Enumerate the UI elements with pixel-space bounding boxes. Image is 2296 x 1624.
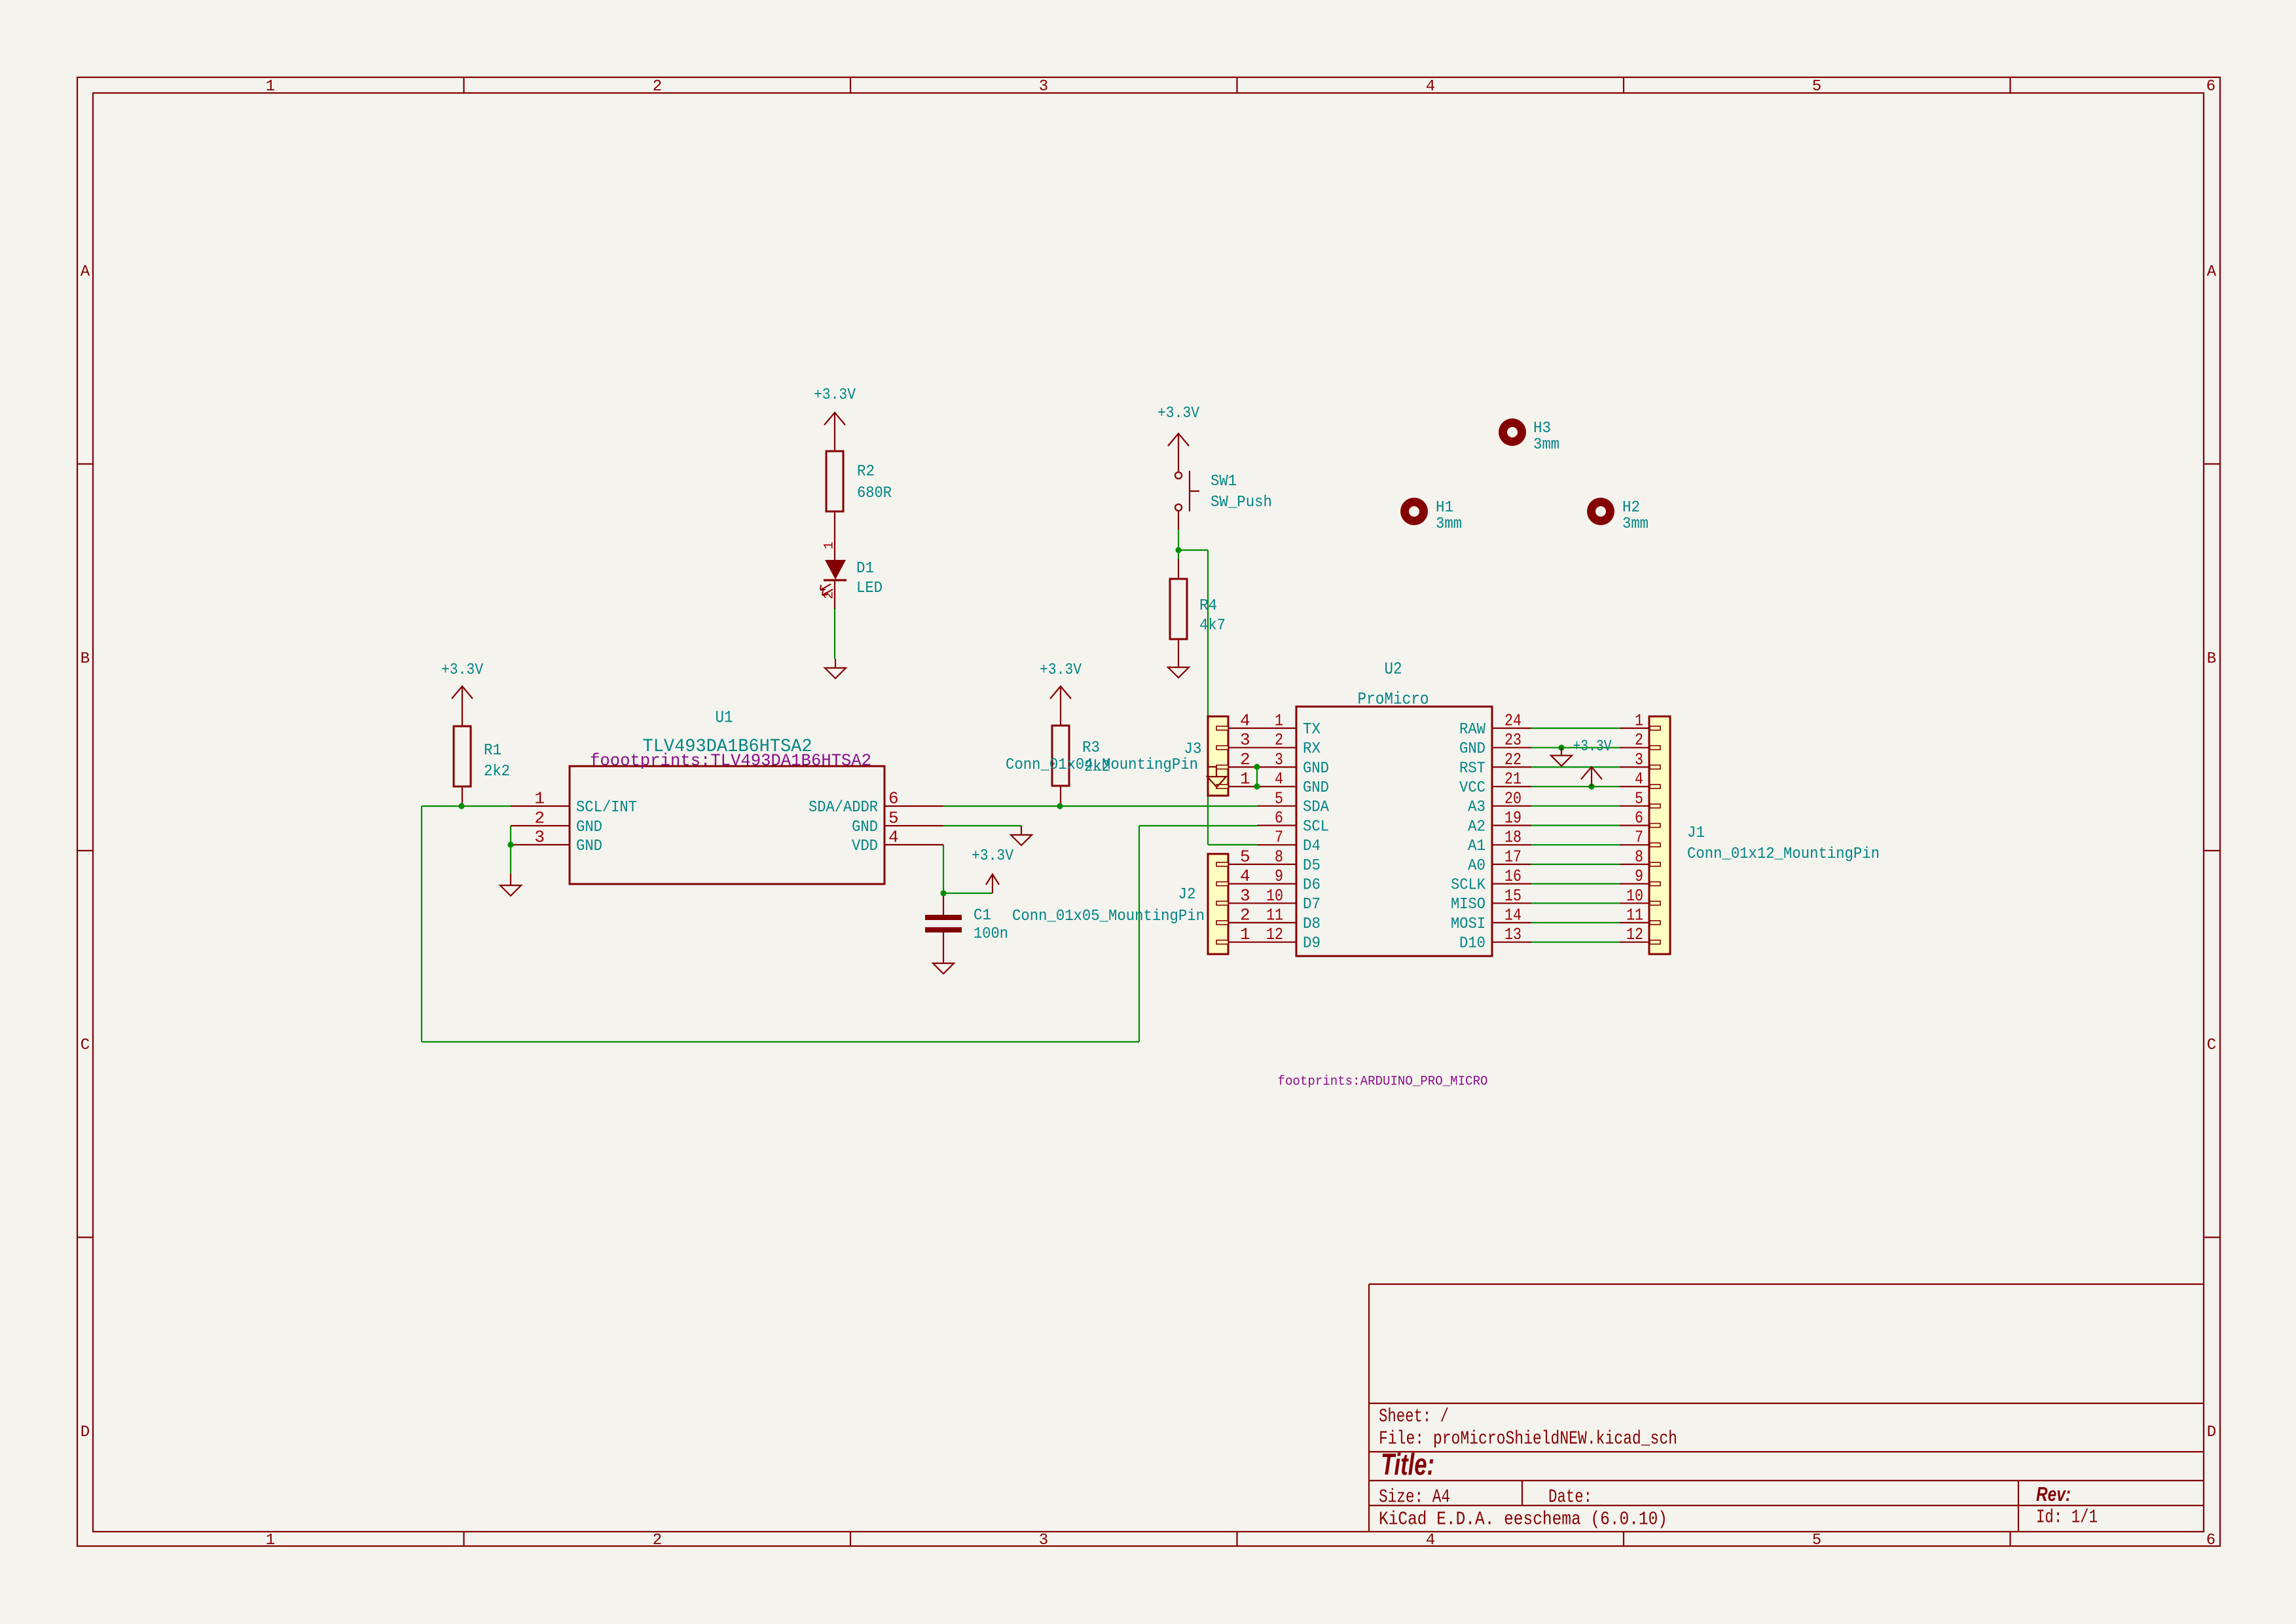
svg-text:C: C — [81, 1037, 90, 1054]
svg-text:11: 11 — [1626, 906, 1643, 925]
svg-text:1: 1 — [534, 789, 545, 809]
svg-text:4: 4 — [1275, 769, 1283, 789]
svg-text:SDA/ADDR: SDA/ADDR — [809, 799, 878, 817]
svg-text:D7: D7 — [1303, 896, 1321, 913]
svg-text:GND: GND — [852, 819, 878, 836]
svg-text:3mm: 3mm — [1533, 436, 1559, 454]
svg-text:3mm: 3mm — [1622, 515, 1649, 533]
svg-text:SCL: SCL — [1303, 818, 1329, 836]
svg-text:2: 2 — [1275, 730, 1283, 750]
svg-text:D10: D10 — [1459, 935, 1485, 953]
svg-text:6: 6 — [888, 789, 899, 809]
svg-text:D5: D5 — [1303, 857, 1321, 875]
svg-text:3: 3 — [1039, 78, 1048, 96]
svg-text:R1: R1 — [484, 742, 501, 760]
svg-text:6: 6 — [2206, 78, 2215, 96]
svg-text:680R: 680R — [857, 485, 892, 502]
svg-text:Conn_01x05_MountingPin: Conn_01x05_MountingPin — [1012, 908, 1205, 925]
svg-text:footprints:ARDUINO_PRO_MICRO: footprints:ARDUINO_PRO_MICRO — [1278, 1075, 1488, 1090]
svg-text:H2: H2 — [1622, 499, 1640, 517]
svg-text:+3.3V: +3.3V — [1573, 738, 1612, 756]
svg-text:12: 12 — [1266, 925, 1283, 944]
svg-text:4: 4 — [888, 828, 899, 847]
svg-text:4: 4 — [1635, 769, 1643, 789]
svg-text:16: 16 — [1504, 866, 1522, 886]
svg-text:5: 5 — [1240, 847, 1250, 866]
svg-text:1: 1 — [1240, 925, 1250, 944]
svg-text:10: 10 — [1266, 886, 1283, 906]
svg-text:A: A — [81, 263, 90, 281]
svg-text:2: 2 — [534, 809, 545, 828]
svg-text:23: 23 — [1504, 730, 1522, 750]
svg-text:GND: GND — [1303, 760, 1329, 777]
svg-text:J2: J2 — [1178, 886, 1196, 904]
svg-text:Conn_01x04_MountingPin: Conn_01x04_MountingPin — [1006, 756, 1198, 774]
svg-text:2: 2 — [822, 591, 837, 599]
svg-text:foootprints:TLV493DA1B6HTSA2: foootprints:TLV493DA1B6HTSA2 — [590, 751, 871, 771]
svg-text:22: 22 — [1504, 750, 1522, 769]
svg-text:U1: U1 — [716, 708, 733, 728]
svg-text:1: 1 — [266, 1532, 275, 1549]
svg-text:15: 15 — [1504, 886, 1522, 906]
svg-text:13: 13 — [1504, 925, 1522, 944]
svg-text:18: 18 — [1504, 828, 1522, 847]
svg-text:GND: GND — [576, 838, 602, 855]
svg-text:R2: R2 — [857, 463, 875, 481]
svg-text:6: 6 — [1635, 808, 1643, 828]
svg-text:7: 7 — [1635, 828, 1643, 847]
svg-text:C: C — [2207, 1037, 2216, 1054]
svg-text:Date:: Date: — [1548, 1486, 1592, 1508]
svg-text:VCC: VCC — [1459, 779, 1485, 797]
svg-text:KiCad E.D.A. eeschema (6.0.10: KiCad E.D.A. eeschema (6.0.10) — [1379, 1509, 1667, 1530]
svg-text:+3.3V: +3.3V — [814, 386, 856, 404]
svg-text:SDA: SDA — [1303, 799, 1330, 817]
svg-text:RAW: RAW — [1459, 721, 1486, 739]
svg-text:9: 9 — [1275, 866, 1283, 886]
svg-text:A3: A3 — [1468, 799, 1485, 817]
svg-text:3: 3 — [1039, 1532, 1048, 1549]
svg-text:B: B — [2207, 650, 2216, 668]
svg-text:LED: LED — [856, 580, 883, 597]
svg-text:D6: D6 — [1303, 877, 1321, 895]
svg-text:5: 5 — [1812, 78, 1821, 96]
svg-text:U2: U2 — [1385, 659, 1402, 679]
svg-text:5: 5 — [888, 809, 899, 828]
svg-text:J1: J1 — [1687, 824, 1705, 842]
svg-text:Conn_01x12_MountingPin: Conn_01x12_MountingPin — [1687, 845, 1880, 863]
svg-text:R4: R4 — [1199, 597, 1217, 615]
svg-text:1: 1 — [266, 78, 275, 96]
svg-text:2: 2 — [1240, 906, 1250, 925]
svg-text:SW_Push: SW_Push — [1211, 494, 1272, 511]
svg-text:File: proMicroShieldNEW.kicad_: File: proMicroShieldNEW.kicad_sch — [1379, 1428, 1677, 1450]
svg-text:D8: D8 — [1303, 915, 1321, 933]
svg-text:SW1: SW1 — [1211, 473, 1237, 490]
svg-text:A2: A2 — [1468, 818, 1485, 836]
svg-text:9: 9 — [1635, 866, 1643, 886]
svg-text:3: 3 — [534, 828, 545, 847]
svg-text:Id: 1/1: Id: 1/1 — [2036, 1507, 2098, 1528]
svg-text:11: 11 — [1266, 906, 1283, 925]
svg-text:3: 3 — [1240, 730, 1250, 750]
svg-text:6: 6 — [2206, 1532, 2215, 1549]
svg-text:RX: RX — [1303, 741, 1321, 758]
svg-text:D: D — [81, 1424, 90, 1441]
svg-text:+3.3V: +3.3V — [972, 847, 1014, 865]
svg-text:+3.3V: +3.3V — [441, 661, 484, 679]
svg-text:ProMicro: ProMicro — [1358, 690, 1429, 709]
svg-text:+3.3V: +3.3V — [1157, 405, 1200, 422]
svg-text:8: 8 — [1275, 847, 1283, 866]
svg-text:MISO: MISO — [1451, 896, 1485, 913]
svg-text:Sheet: /: Sheet: / — [1379, 1406, 1449, 1428]
svg-text:3: 3 — [1635, 750, 1643, 769]
svg-text:4: 4 — [1426, 78, 1435, 96]
svg-text:Title:: Title: — [1381, 1447, 1434, 1481]
svg-text:B: B — [81, 650, 90, 668]
svg-text:RST: RST — [1459, 760, 1485, 777]
svg-text:2: 2 — [653, 1532, 662, 1549]
svg-text:D9: D9 — [1303, 935, 1321, 953]
svg-text:SCL/INT: SCL/INT — [576, 799, 637, 817]
svg-text:2k2: 2k2 — [484, 763, 510, 781]
svg-text:6: 6 — [1275, 808, 1283, 828]
svg-text:3: 3 — [1275, 750, 1283, 769]
svg-text:4: 4 — [1426, 1532, 1435, 1549]
svg-text:H3: H3 — [1533, 420, 1551, 437]
svg-text:100n: 100n — [974, 925, 1008, 943]
svg-text:2: 2 — [1240, 750, 1250, 769]
svg-text:VDD: VDD — [852, 838, 878, 855]
svg-text:1: 1 — [1275, 711, 1283, 731]
svg-text:8: 8 — [1635, 847, 1643, 866]
svg-text:TX: TX — [1303, 721, 1321, 739]
svg-text:+3.3V: +3.3V — [1040, 661, 1082, 679]
svg-text:A: A — [2207, 263, 2217, 281]
svg-text:4k7: 4k7 — [1199, 617, 1226, 635]
svg-text:2: 2 — [653, 78, 662, 96]
svg-text:14: 14 — [1504, 906, 1522, 925]
svg-text:19: 19 — [1504, 808, 1522, 828]
svg-text:R3: R3 — [1082, 739, 1100, 757]
svg-text:MOSI: MOSI — [1451, 915, 1485, 933]
svg-text:SCLK: SCLK — [1451, 877, 1486, 895]
svg-text:3mm: 3mm — [1436, 515, 1462, 533]
svg-text:1: 1 — [1635, 711, 1643, 731]
svg-text:H1: H1 — [1436, 499, 1453, 517]
svg-text:D: D — [2207, 1424, 2216, 1441]
svg-text:J3: J3 — [1184, 741, 1202, 758]
svg-text:1: 1 — [1240, 769, 1250, 789]
svg-text:3: 3 — [1240, 886, 1250, 906]
svg-text:17: 17 — [1504, 847, 1522, 866]
svg-text:D4: D4 — [1303, 838, 1321, 855]
svg-text:GND: GND — [1303, 779, 1329, 797]
svg-text:A0: A0 — [1468, 857, 1485, 875]
svg-text:2: 2 — [1635, 730, 1643, 750]
svg-text:5: 5 — [1812, 1532, 1821, 1549]
svg-text:4: 4 — [1240, 866, 1250, 886]
svg-text:10: 10 — [1626, 886, 1643, 906]
svg-text:C1: C1 — [974, 907, 991, 925]
svg-text:4: 4 — [1240, 711, 1250, 731]
svg-text:Rev:: Rev: — [2036, 1483, 2071, 1505]
svg-text:12: 12 — [1626, 925, 1643, 944]
svg-text:A1: A1 — [1468, 838, 1485, 855]
svg-text:5: 5 — [1635, 788, 1643, 808]
svg-text:GND: GND — [576, 819, 602, 836]
svg-text:Size: A4: Size: A4 — [1379, 1486, 1450, 1508]
svg-text:GND: GND — [1459, 741, 1485, 758]
svg-text:D1: D1 — [856, 560, 874, 578]
svg-text:7: 7 — [1275, 828, 1283, 847]
svg-text:20: 20 — [1504, 788, 1522, 808]
svg-text:24: 24 — [1504, 711, 1522, 731]
svg-text:1: 1 — [822, 542, 837, 549]
svg-text:21: 21 — [1504, 769, 1522, 789]
svg-text:5: 5 — [1275, 788, 1283, 808]
